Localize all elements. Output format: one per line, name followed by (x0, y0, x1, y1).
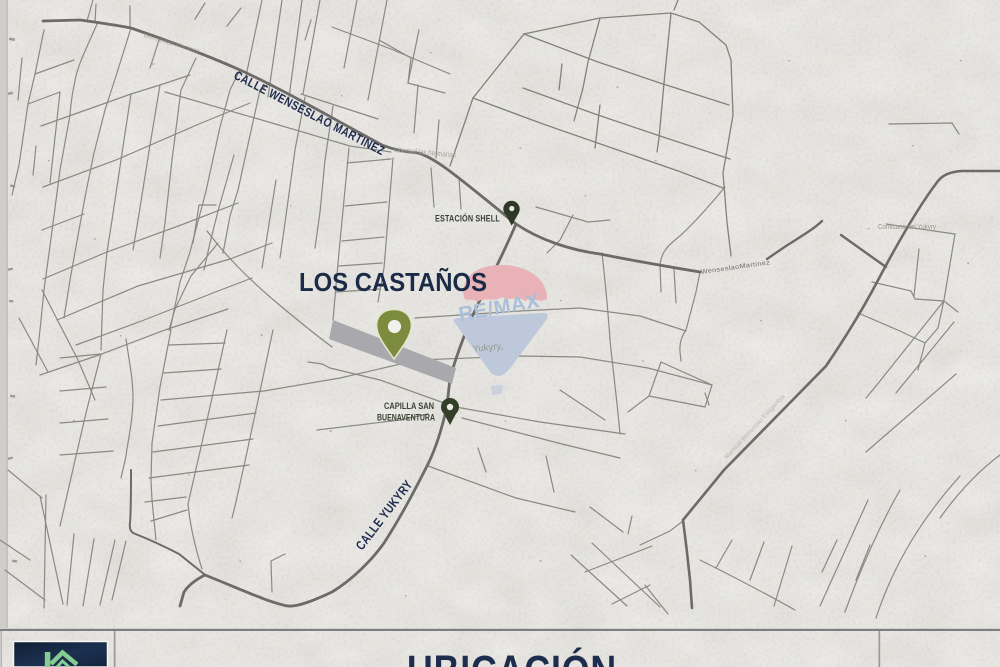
svg-text:Comisaria del Yukyry: Comisaria del Yukyry (878, 224, 936, 231)
svg-text:UBICACIÓN: UBICACIÓN (407, 646, 617, 667)
svg-text:BUENAVENTURA: BUENAVENTURA (377, 413, 435, 424)
svg-text:ESTACIÓN SHELL: ESTACIÓN SHELL (435, 213, 500, 224)
svg-text:CAPILLA SAN: CAPILLA SAN (384, 401, 434, 412)
svg-text:LOS CASTAÑOS: LOS CASTAÑOS (299, 267, 487, 297)
